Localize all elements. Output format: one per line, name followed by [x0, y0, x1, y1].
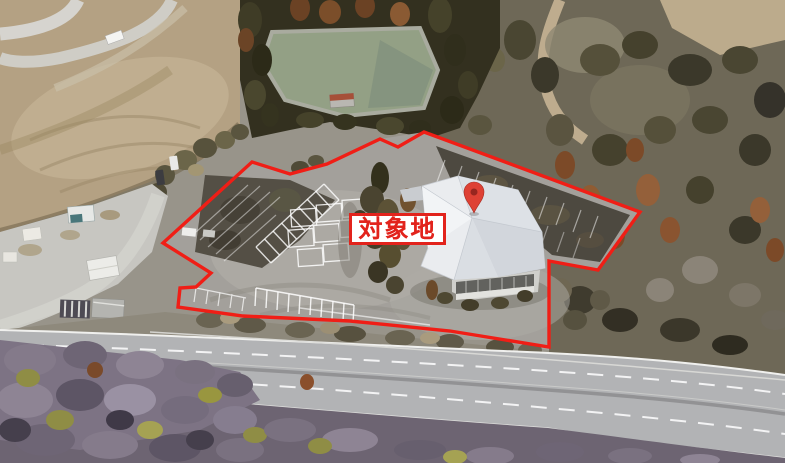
- forest-with-pond: [238, 0, 500, 138]
- bus-shelter: [60, 298, 125, 319]
- small-shed: [3, 252, 17, 262]
- teal-shed: [67, 205, 94, 223]
- small-shed: [22, 227, 41, 241]
- parked-car: [182, 227, 197, 236]
- work-hut: [330, 93, 355, 108]
- site-label: 対象地: [349, 213, 446, 245]
- annotated-aerial-screenshot: 対象地: [0, 0, 785, 463]
- site-label-text: 対象地: [359, 217, 437, 241]
- parked-car: [203, 229, 216, 237]
